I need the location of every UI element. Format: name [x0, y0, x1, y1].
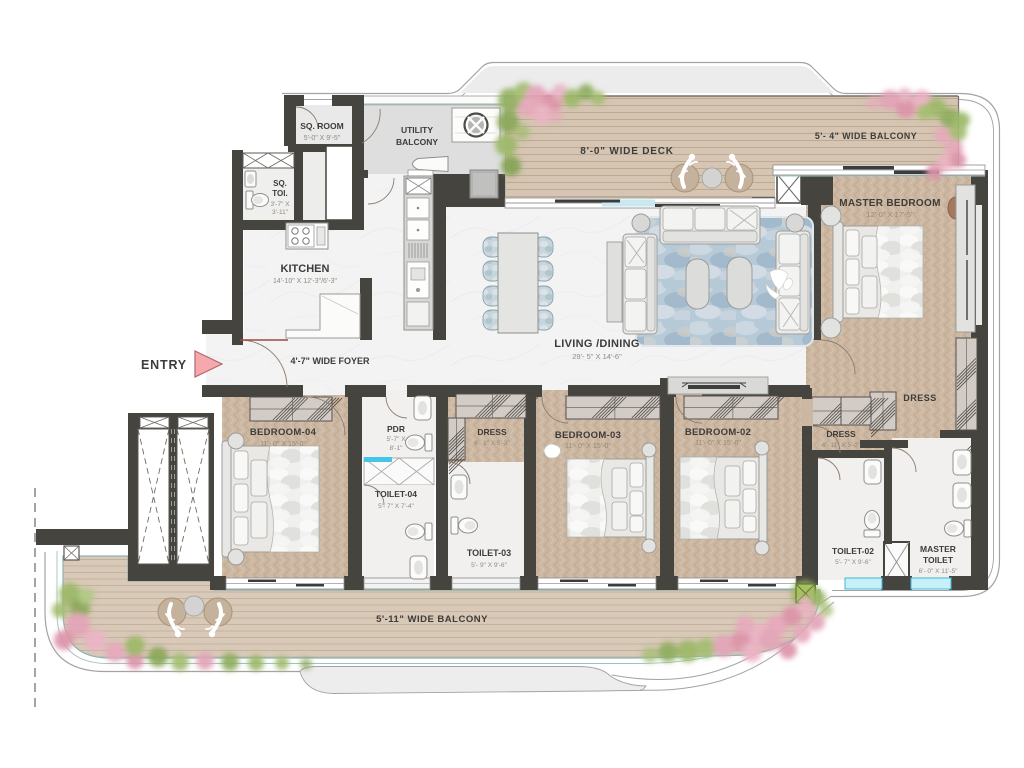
svg-text:SQ.: SQ. — [273, 179, 287, 188]
svg-text:6'- 1" X 5'-3": 6'- 1" X 5'-3" — [474, 440, 510, 447]
svg-text:TOI.: TOI. — [272, 189, 287, 198]
svg-text:3'-11": 3'-11" — [272, 209, 289, 216]
svg-text:5'-0" X 9'-5": 5'-0" X 9'-5" — [304, 135, 341, 142]
svg-text:29'- 5" X 14'-6": 29'- 5" X 14'-6" — [572, 352, 622, 361]
svg-text:MASTER BEDROOM: MASTER BEDROOM — [839, 198, 940, 209]
svg-text:5'- 7" X 9'-6": 5'- 7" X 9'-6" — [835, 559, 871, 566]
svg-text:BEDROOM-04: BEDROOM-04 — [250, 427, 317, 438]
svg-text:TOILET-04: TOILET-04 — [375, 489, 417, 499]
svg-text:DRESS: DRESS — [903, 393, 937, 403]
svg-text:UTILITY: UTILITY — [401, 125, 433, 135]
svg-text:TOILET: TOILET — [923, 555, 954, 565]
svg-text:SQ. ROOM: SQ. ROOM — [300, 121, 343, 131]
svg-text:8'-0" WIDE DECK: 8'-0" WIDE DECK — [580, 146, 674, 157]
svg-text:TOILET-02: TOILET-02 — [832, 546, 874, 556]
svg-text:14'-10" X 12'-3"/6'-3": 14'-10" X 12'-3"/6'-3" — [273, 278, 338, 285]
svg-text:5'- 4" WIDE BALCONY: 5'- 4" WIDE BALCONY — [815, 131, 917, 141]
svg-text:5'-11" WIDE BALCONY: 5'-11" WIDE BALCONY — [376, 614, 488, 625]
svg-text:11'- 0" X 15'-0": 11'- 0" X 15'-0" — [260, 441, 306, 448]
svg-text:KITCHEN: KITCHEN — [281, 263, 330, 275]
svg-text:12'-0" X 17'-5": 12'-0" X 17'-5" — [866, 210, 914, 219]
svg-text:4'-7" WIDE FOYER: 4'-7" WIDE FOYER — [291, 356, 370, 366]
svg-text:5'-7" X: 5'-7" X — [386, 436, 406, 443]
svg-text:LIVING /DINING: LIVING /DINING — [554, 338, 639, 350]
svg-text:8'-1": 8'-1" — [390, 445, 404, 452]
svg-text:ENTRY: ENTRY — [141, 358, 187, 372]
svg-text:MASTER: MASTER — [920, 544, 956, 554]
svg-text:TOILET-03: TOILET-03 — [467, 548, 511, 558]
svg-text:DRESS: DRESS — [826, 429, 856, 439]
svg-text:BEDROOM-03: BEDROOM-03 — [555, 430, 621, 441]
svg-text:DRESS: DRESS — [477, 427, 507, 437]
svg-text:5'- 7" X 7'-4": 5'- 7" X 7'-4" — [378, 503, 414, 510]
svg-text:6'- 0" X 11'-5": 6'- 0" X 11'-5" — [919, 568, 958, 575]
svg-text:5'- 9" X 9'-6": 5'- 9" X 9'-6" — [471, 562, 507, 569]
svg-text:4'- 11" X 5'-3": 4'- 11" X 5'-3" — [822, 442, 861, 449]
svg-text:PDR: PDR — [387, 424, 405, 434]
svg-text:BALCONY: BALCONY — [396, 137, 438, 147]
svg-text:11'- 0" X 15'-0": 11'- 0" X 15'-0" — [695, 440, 741, 447]
svg-text:3'-7" X: 3'-7" X — [270, 201, 290, 208]
svg-text:11'- 0" X 15'-0": 11'- 0" X 15'-0" — [565, 443, 611, 450]
svg-text:BEDROOM-02: BEDROOM-02 — [685, 427, 751, 438]
